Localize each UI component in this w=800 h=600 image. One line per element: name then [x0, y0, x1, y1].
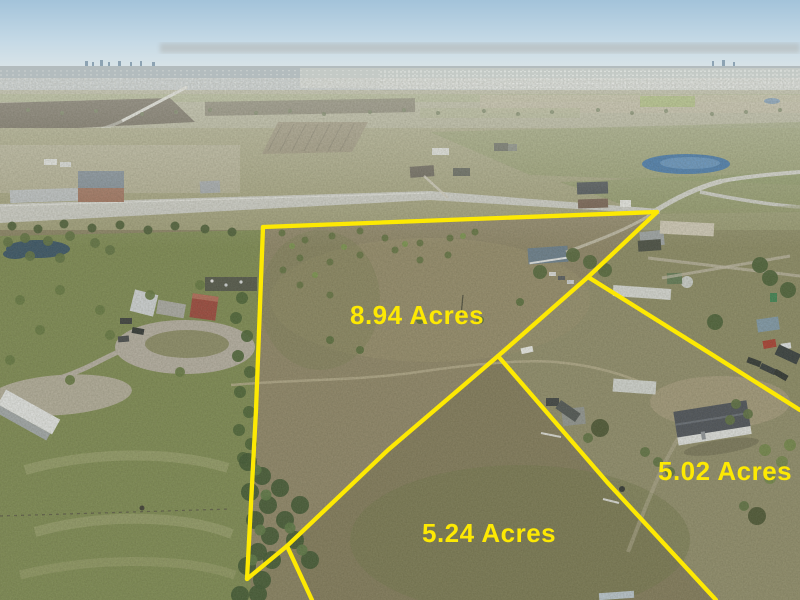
aerial-photo-canvas: 8.94 Acres 5.24 Acres 5.02 Acres — [0, 0, 800, 600]
aerial-photo: 8.94 Acres 5.24 Acres 5.02 Acres — [0, 0, 800, 600]
label-894-acres: 8.94 Acres — [350, 300, 484, 330]
grass-texture-light — [0, 78, 800, 600]
label-502-acres: 5.02 Acres — [658, 456, 792, 486]
label-524-acres: 5.24 Acres — [422, 518, 556, 548]
smog-band — [160, 43, 800, 53]
